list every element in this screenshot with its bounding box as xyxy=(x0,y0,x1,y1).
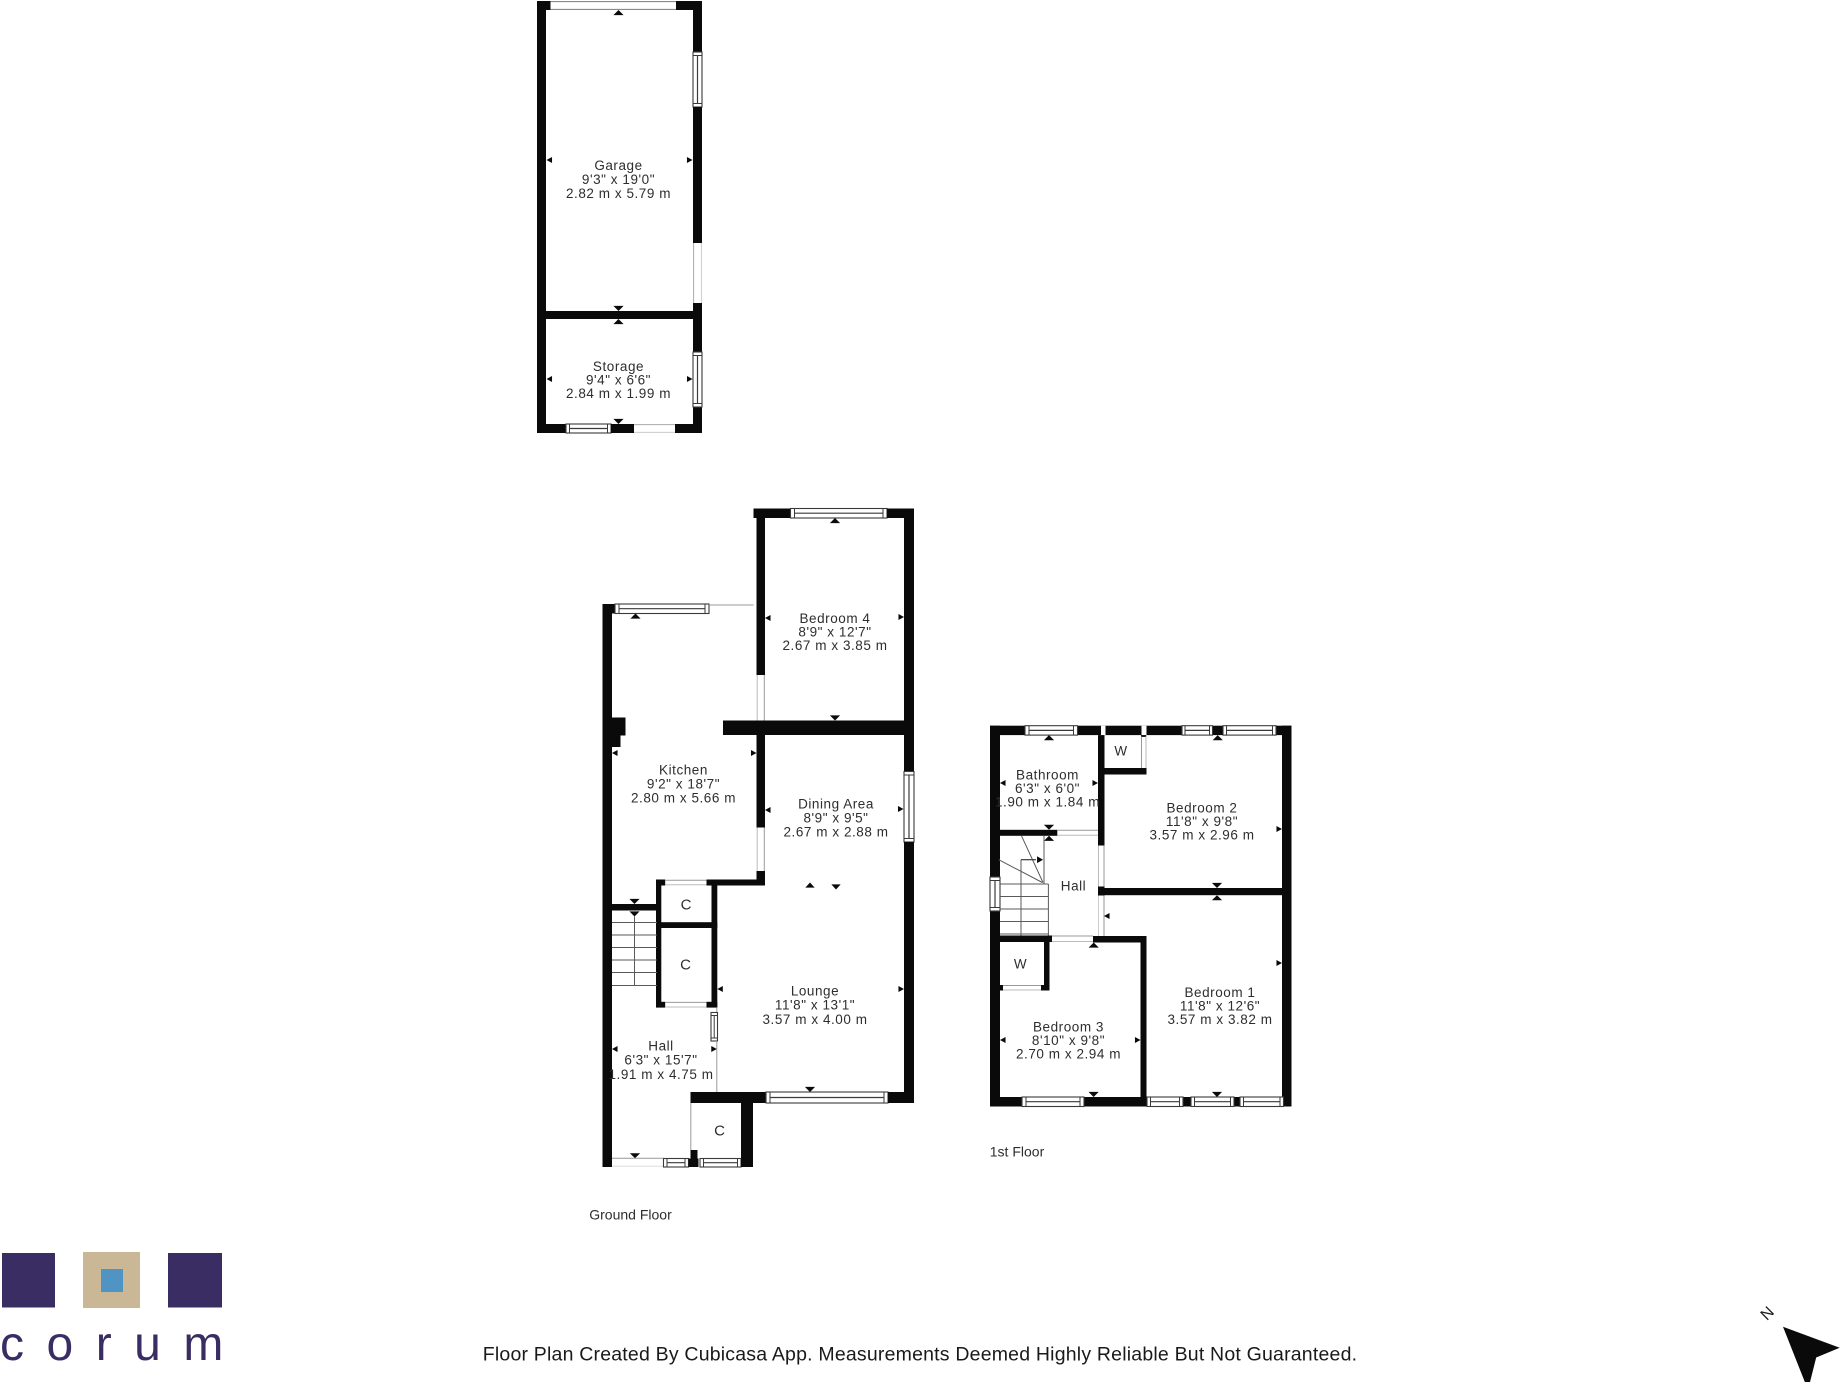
svg-text:Ground Floor: Ground Floor xyxy=(589,1207,672,1223)
svg-text:Hall: Hall xyxy=(1061,879,1086,894)
svg-text:9'3" x 19'0": 9'3" x 19'0" xyxy=(582,172,655,187)
svg-text:Garage: Garage xyxy=(594,158,642,173)
svg-text:1st Floor: 1st Floor xyxy=(990,1143,1045,1159)
svg-text:2.70 m x 2.94 m: 2.70 m x 2.94 m xyxy=(1016,1047,1121,1062)
svg-text:C: C xyxy=(714,1123,725,1140)
svg-text:corum: corum xyxy=(0,1318,246,1371)
svg-text:3.57 m x 3.82 m: 3.57 m x 3.82 m xyxy=(1167,1012,1272,1027)
svg-text:Hall: Hall xyxy=(648,1039,673,1054)
svg-text:Floor Plan Created By Cubicasa: Floor Plan Created By Cubicasa App. Meas… xyxy=(483,1344,1357,1366)
svg-text:Lounge: Lounge xyxy=(791,984,839,999)
svg-text:2.84 m x 1.99 m: 2.84 m x 1.99 m xyxy=(566,386,671,401)
svg-text:Dining Area: Dining Area xyxy=(798,797,874,812)
svg-text:W: W xyxy=(1114,744,1127,759)
svg-text:Kitchen: Kitchen xyxy=(659,763,708,778)
svg-text:1.91 m x 4.75 m: 1.91 m x 4.75 m xyxy=(608,1067,713,1082)
svg-text:C: C xyxy=(681,897,692,914)
svg-text:6'3" x 15'7": 6'3" x 15'7" xyxy=(624,1053,697,1068)
svg-text:11'8" x 13'1": 11'8" x 13'1" xyxy=(775,998,855,1013)
svg-text:1.90 m x 1.84 m: 1.90 m x 1.84 m xyxy=(995,795,1100,810)
svg-text:2.80 m x 5.66 m: 2.80 m x 5.66 m xyxy=(631,791,736,806)
svg-text:2.67 m x 2.88 m: 2.67 m x 2.88 m xyxy=(783,825,888,840)
svg-text:3.57 m x 4.00 m: 3.57 m x 4.00 m xyxy=(762,1012,867,1027)
svg-text:C: C xyxy=(680,957,691,974)
svg-text:3.57 m x 2.96 m: 3.57 m x 2.96 m xyxy=(1149,828,1254,843)
svg-text:9'2" x 18'7": 9'2" x 18'7" xyxy=(647,777,720,792)
svg-text:2.82 m x 5.79 m: 2.82 m x 5.79 m xyxy=(566,186,671,201)
svg-text:2.67 m x 3.85 m: 2.67 m x 3.85 m xyxy=(782,638,887,653)
svg-text:8'9" x 9'5": 8'9" x 9'5" xyxy=(803,811,868,826)
svg-text:W: W xyxy=(1014,957,1027,972)
